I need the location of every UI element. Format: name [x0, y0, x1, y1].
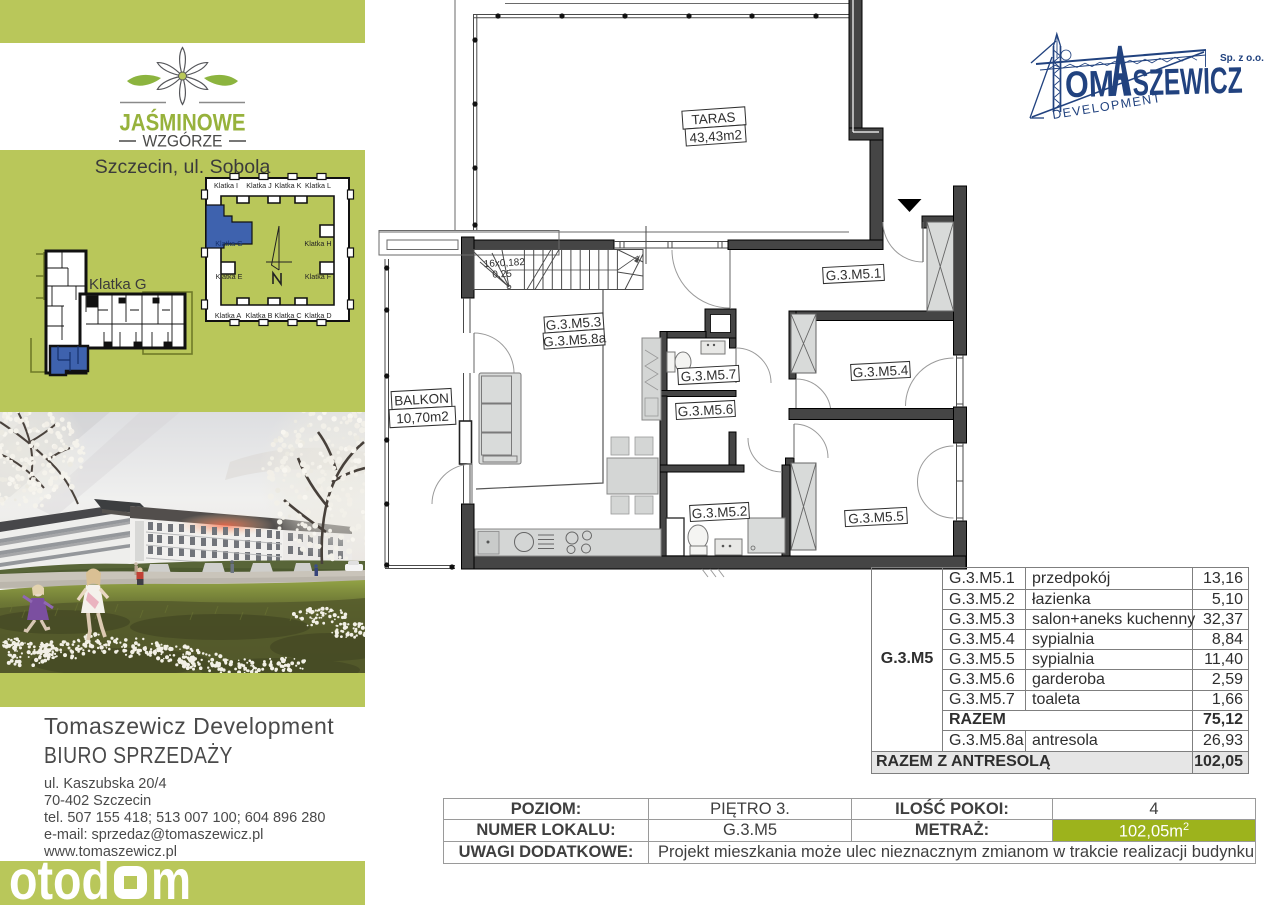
svg-text:Klatka J: Klatka J [246, 181, 272, 190]
svg-text:Klatka C: Klatka C [274, 311, 301, 320]
svg-text:G.3.M5.1: G.3.M5.1 [825, 266, 881, 284]
svg-text:WZGÓRZE: WZGÓRZE [143, 132, 223, 151]
svg-text:Klatka L: Klatka L [305, 181, 331, 190]
svg-text:Sp. z o.o.: Sp. z o.o. [1220, 53, 1264, 64]
svg-text:G.3.M5.5: G.3.M5.5 [848, 509, 904, 527]
svg-text:G.3.M5.4: G.3.M5.4 [852, 363, 909, 381]
svg-text:m: m [151, 861, 191, 905]
svg-text:Klatka D: Klatka D [304, 311, 331, 320]
svg-text:BALKON: BALKON [394, 391, 449, 409]
svg-text:Klatka G: Klatka G [89, 276, 147, 293]
svg-text:TARAS: TARAS [691, 110, 736, 128]
svg-text:0,25: 0,25 [492, 269, 512, 281]
svg-text:Klatka F: Klatka F [305, 272, 332, 281]
svg-text:G.3.M5.7: G.3.M5.7 [680, 367, 736, 385]
svg-text:Klatka G: Klatka G [215, 239, 243, 248]
svg-text:Klatka I: Klatka I [214, 181, 238, 190]
svg-text:Klatka E: Klatka E [216, 272, 243, 281]
svg-text:G.3.M5.8a: G.3.M5.8a [543, 330, 607, 349]
svg-text:10,70m2: 10,70m2 [396, 409, 449, 427]
svg-text:G.3.M5.2: G.3.M5.2 [691, 504, 747, 522]
svg-text:Klatka K: Klatka K [275, 181, 302, 190]
svg-text:otod: otod [9, 861, 110, 905]
svg-text:Klatka A: Klatka A [215, 311, 242, 320]
svg-text:G.3.M5.6: G.3.M5.6 [677, 402, 733, 420]
svg-text:Klatka B: Klatka B [246, 311, 273, 320]
svg-text:Klatka H: Klatka H [304, 239, 331, 248]
